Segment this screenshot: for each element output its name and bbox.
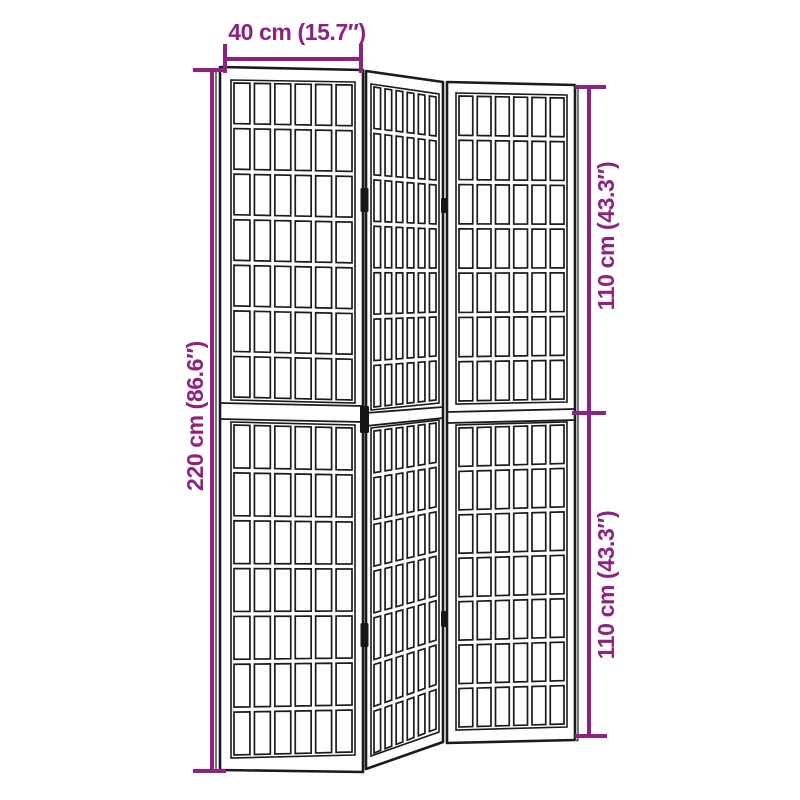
grid-cell: [407, 273, 414, 313]
grid-cell: [514, 141, 528, 180]
grid-cell: [477, 361, 491, 400]
grid-cell: [477, 185, 491, 224]
grid-cell: [514, 556, 528, 595]
grid-cell: [234, 569, 250, 612]
hinge-icon: [441, 611, 447, 627]
grid-cell: [396, 701, 403, 744]
grid-cell: [514, 687, 528, 726]
grid-cell: [295, 175, 311, 216]
grid-cell: [295, 616, 311, 658]
grid-cell: [234, 129, 250, 170]
grid-cell: [407, 652, 414, 695]
grid-cell: [295, 84, 311, 125]
grid-cell: [374, 709, 381, 753]
grid-cell: [532, 599, 546, 638]
grid-cell: [374, 663, 381, 707]
grid-cell: [254, 711, 270, 754]
product-dimension-image: 40 cm (15.7″) 220 cm (86.6″) 110 cm (43.…: [0, 0, 800, 800]
grid-cell: [407, 426, 414, 467]
grid-cell: [418, 649, 425, 691]
grid-cell: [514, 469, 528, 508]
grid-cell: [254, 426, 270, 469]
grid-cell: [295, 427, 311, 470]
grid-cell: [295, 358, 311, 399]
grid-cell: [336, 522, 352, 564]
grid-cell: [477, 96, 491, 135]
grid-cell: [532, 643, 546, 682]
grid-cell: [459, 96, 473, 135]
grid-cell: [477, 644, 491, 683]
grid-cell: [316, 267, 332, 308]
grid-cell: [429, 96, 436, 136]
grid-cell: [496, 141, 510, 180]
room-divider-dimension-diagram: 40 cm (15.7″) 220 cm (86.6″) 110 cm (43.…: [0, 0, 800, 800]
grid-cell: [396, 656, 403, 699]
grid-cell: [459, 229, 473, 268]
grid-cell: [429, 690, 436, 732]
grid-cell: [385, 567, 392, 610]
grid-cell: [477, 273, 491, 312]
grid-cell: [550, 317, 564, 356]
grid-cell: [316, 176, 332, 217]
grid-cell: [396, 273, 403, 314]
grid-cell: [418, 273, 425, 313]
grid-cell: [234, 425, 250, 468]
grid-cell: [396, 519, 403, 561]
grid-cell: [385, 135, 392, 177]
grid-cell: [254, 129, 270, 170]
grid-cell: [418, 559, 425, 601]
grid-cell: [477, 471, 491, 510]
grid-cell: [407, 228, 414, 268]
grid-cell: [418, 94, 425, 134]
grid-cell: [550, 185, 564, 224]
grid-cell: [514, 600, 528, 639]
grid-cell: [396, 427, 403, 469]
grid-cell: [275, 474, 291, 517]
grid-cell: [295, 221, 311, 262]
grid-cell: [514, 273, 528, 312]
grid-cell: [429, 645, 436, 687]
hinge-icon: [361, 623, 369, 647]
grid-cell: [295, 474, 311, 517]
grid-cell: [275, 129, 291, 170]
grid-cell: [374, 273, 381, 314]
dimension-label-right-lower-height: 110 cm (43.3″): [593, 511, 619, 660]
grid-cell: [477, 514, 491, 553]
grid-cell: [336, 428, 352, 470]
grid-cell: [418, 184, 425, 224]
grid-cell: [295, 130, 311, 171]
grid-cell: [418, 317, 425, 357]
grid-cell: [234, 712, 250, 755]
grid-cell: [385, 319, 392, 360]
grid-cell: [459, 471, 473, 510]
grid-cell: [275, 426, 291, 469]
grid-cell: [407, 363, 414, 404]
dimension-label-right-upper-height: 110 cm (43.3″): [593, 162, 619, 311]
grid-cell: [459, 514, 473, 553]
grid-cell: [374, 430, 381, 473]
grid-cell: [477, 317, 491, 356]
grid-cell: [275, 175, 291, 216]
grid-cell: [374, 133, 381, 175]
grid-cell: [316, 710, 332, 753]
grid-cell: [275, 357, 291, 398]
grid-cell: [496, 185, 510, 224]
grid-cell: [234, 616, 250, 659]
grid-cell: [407, 137, 414, 178]
grid-cell: [396, 363, 403, 404]
grid-cell: [418, 514, 425, 555]
grid-cell: [254, 220, 270, 261]
grid-cell: [396, 473, 403, 515]
grid-cell: [336, 222, 352, 263]
grid-cell: [374, 87, 381, 129]
grid-cell: [254, 311, 270, 352]
grid-cell: [477, 601, 491, 640]
grid-cell: [396, 564, 403, 606]
grid-cell: [275, 221, 291, 262]
grid-cell: [336, 569, 352, 611]
hinge-icon: [441, 198, 447, 213]
grid-cell: [316, 221, 332, 262]
grid-cell: [496, 470, 510, 509]
grid-cell: [429, 423, 436, 464]
grid-cell: [234, 220, 250, 261]
grid-cell: [374, 319, 381, 361]
grid-cell: [396, 227, 403, 268]
grid-cell: [336, 268, 352, 309]
panel-3: [447, 82, 578, 743]
panel-1: [216, 67, 363, 772]
grid-cell: [234, 356, 250, 397]
grid-cell: [385, 613, 392, 656]
grid-cell: [459, 645, 473, 684]
grid-cell: [550, 273, 564, 312]
grid-cell: [295, 569, 311, 611]
grid-cell: [550, 599, 564, 638]
grid-cell: [496, 229, 510, 268]
grid-cell: [254, 357, 270, 398]
grid-cell: [396, 91, 403, 132]
grid-cell: [496, 600, 510, 639]
dimension-label-left-height: 220 cm (86.6″): [182, 341, 208, 491]
grid-cell: [396, 136, 403, 177]
grid-cell: [254, 83, 270, 124]
grid-cell: [550, 142, 564, 181]
grid-cell: [550, 512, 564, 551]
grid-cell: [477, 688, 491, 727]
grid-cell: [514, 513, 528, 552]
grid-cell: [316, 130, 332, 171]
grid-cell: [385, 89, 392, 131]
grid-cell: [514, 643, 528, 682]
grid-cell: [514, 185, 528, 224]
grid-cell: [295, 267, 311, 308]
grid-cell: [459, 185, 473, 224]
grid-cell: [459, 140, 473, 179]
grid-cell: [374, 570, 381, 613]
grid-cell: [550, 642, 564, 681]
grid-cell: [336, 475, 352, 517]
grid-cell: [254, 521, 270, 564]
grid-cell: [316, 616, 332, 658]
grid-cell: [496, 97, 510, 136]
grid-cell: [550, 686, 564, 725]
grid-cell: [459, 362, 473, 401]
grid-cell: [407, 562, 414, 604]
grid-cell: [477, 141, 491, 180]
grid-cell: [418, 362, 425, 402]
grid-cell: [374, 226, 381, 267]
grid-cell: [254, 664, 270, 707]
grid-cell: [532, 317, 546, 356]
grid-cell: [496, 427, 510, 466]
grid-cell: [407, 318, 414, 358]
grid-cell: [275, 521, 291, 564]
grid-cell: [514, 229, 528, 268]
grid-cell: [336, 130, 352, 171]
grid-cell: [532, 556, 546, 595]
grid-cell: [275, 664, 291, 707]
grid-cell: [550, 425, 564, 464]
grid-cell: [407, 516, 414, 558]
grid-cell: [550, 98, 564, 137]
grid-cell: [316, 569, 332, 611]
grid-cell: [385, 429, 392, 471]
grid-cell: [477, 229, 491, 268]
grid-cell: [385, 475, 392, 517]
hinge-icon: [361, 188, 369, 212]
grid-cell: [234, 265, 250, 306]
grid-cell: [459, 273, 473, 312]
grid-cell: [336, 663, 352, 705]
grid-cell: [429, 140, 436, 180]
grid-cell: [496, 687, 510, 726]
grid-cell: [477, 427, 491, 466]
grid-cell: [275, 84, 291, 125]
grid-cell: [532, 273, 546, 312]
grid-cell: [429, 512, 436, 553]
grid-cell: [532, 141, 546, 180]
grid-cell: [316, 474, 332, 516]
grid-cell: [234, 521, 250, 564]
grid-cell: [374, 365, 381, 407]
grid-cell: [374, 180, 381, 222]
grid-cell: [407, 471, 414, 513]
grid-cell: [275, 711, 291, 754]
grid-cell: [514, 361, 528, 400]
grid-cell: [459, 688, 473, 727]
folding-screen-drawing: [216, 67, 578, 772]
grid-cell: [316, 313, 332, 354]
grid-cell: [459, 428, 473, 467]
grid-cell: [275, 616, 291, 659]
grid-cell: [295, 312, 311, 353]
dimension-label-top-width: 40 cm (15.7″): [228, 19, 366, 45]
grid-cell: [459, 601, 473, 640]
grid-cell: [418, 693, 425, 735]
grid-cell: [429, 601, 436, 642]
grid-cell: [396, 610, 403, 653]
grid-cell: [254, 473, 270, 516]
grid-cell: [336, 85, 352, 126]
grid-cell: [418, 139, 425, 179]
grid-cell: [459, 558, 473, 597]
grid-cell: [385, 181, 392, 222]
grid-cell: [418, 424, 425, 465]
grid-cell: [295, 663, 311, 706]
grid-cell: [418, 228, 425, 268]
grid-cell: [429, 273, 436, 312]
grid-cell: [532, 97, 546, 136]
grid-cell: [532, 426, 546, 465]
grid-cell: [407, 92, 414, 133]
grid-cell: [514, 317, 528, 356]
grid-cell: [532, 512, 546, 551]
grid-cell: [407, 697, 414, 740]
grid-cell: [429, 467, 436, 508]
grid-cell: [234, 83, 250, 124]
grid-cell: [385, 659, 392, 702]
grid-cell: [275, 569, 291, 612]
grid-cell: [550, 229, 564, 268]
grid-cell: [550, 468, 564, 507]
grid-cell: [254, 616, 270, 659]
grid-cell: [532, 686, 546, 725]
grid-cell: [429, 556, 436, 597]
panel-edge: [575, 740, 578, 741]
grid-cell: [234, 311, 250, 352]
grid-cell: [295, 711, 311, 754]
grid-cell: [316, 358, 332, 399]
grid-cell: [316, 427, 332, 470]
grid-cell: [385, 227, 392, 268]
grid-cell: [385, 521, 392, 564]
grid-cell: [496, 644, 510, 683]
hinge-icon: [360, 406, 369, 433]
grid-cell: [532, 185, 546, 224]
grid-cell: [477, 557, 491, 596]
grid-cell: [407, 183, 414, 223]
grid-cell: [429, 317, 436, 356]
grid-cell: [275, 266, 291, 307]
grid-cell: [396, 182, 403, 223]
grid-cell: [550, 360, 564, 399]
grid-cell: [496, 513, 510, 552]
grid-cell: [254, 266, 270, 307]
grid-cell: [254, 175, 270, 216]
grid-cell: [336, 176, 352, 217]
grid-cell: [514, 97, 528, 136]
grid-cell: [429, 184, 436, 224]
grid-cell: [374, 616, 381, 660]
grid-cell: [374, 477, 381, 520]
grid-cell: [550, 555, 564, 594]
grid-cell: [234, 664, 250, 707]
grid-cell: [418, 604, 425, 646]
grid-cell: [316, 84, 332, 125]
grid-cell: [336, 359, 352, 400]
grid-cell: [418, 469, 425, 510]
grid-cell: [429, 361, 436, 401]
grid-cell: [514, 426, 528, 465]
grid-cell: [532, 229, 546, 268]
grid-cell: [496, 317, 510, 356]
grid-cell: [496, 557, 510, 596]
grid-cell: [496, 273, 510, 312]
grid-cell: [316, 522, 332, 564]
grid-cell: [316, 663, 332, 705]
grid-cell: [336, 710, 352, 752]
grid-cell: [396, 318, 403, 359]
grid-cell: [532, 469, 546, 508]
grid-cell: [385, 273, 392, 314]
grid-cell: [336, 616, 352, 658]
grid-cell: [385, 705, 392, 749]
grid-cell: [234, 473, 250, 516]
grid-cell: [385, 364, 392, 405]
grid-cell: [275, 312, 291, 353]
grid-cell: [295, 521, 311, 563]
grid-cell: [532, 361, 546, 400]
grid-cell: [496, 361, 510, 400]
grid-cell: [429, 229, 436, 268]
panel-2: [366, 71, 443, 769]
grid-cell: [459, 317, 473, 356]
grid-cell: [407, 607, 414, 649]
grid-cell: [374, 523, 381, 566]
grid-cell: [234, 174, 250, 215]
grid-cell: [254, 569, 270, 612]
grid-cell: [336, 313, 352, 354]
